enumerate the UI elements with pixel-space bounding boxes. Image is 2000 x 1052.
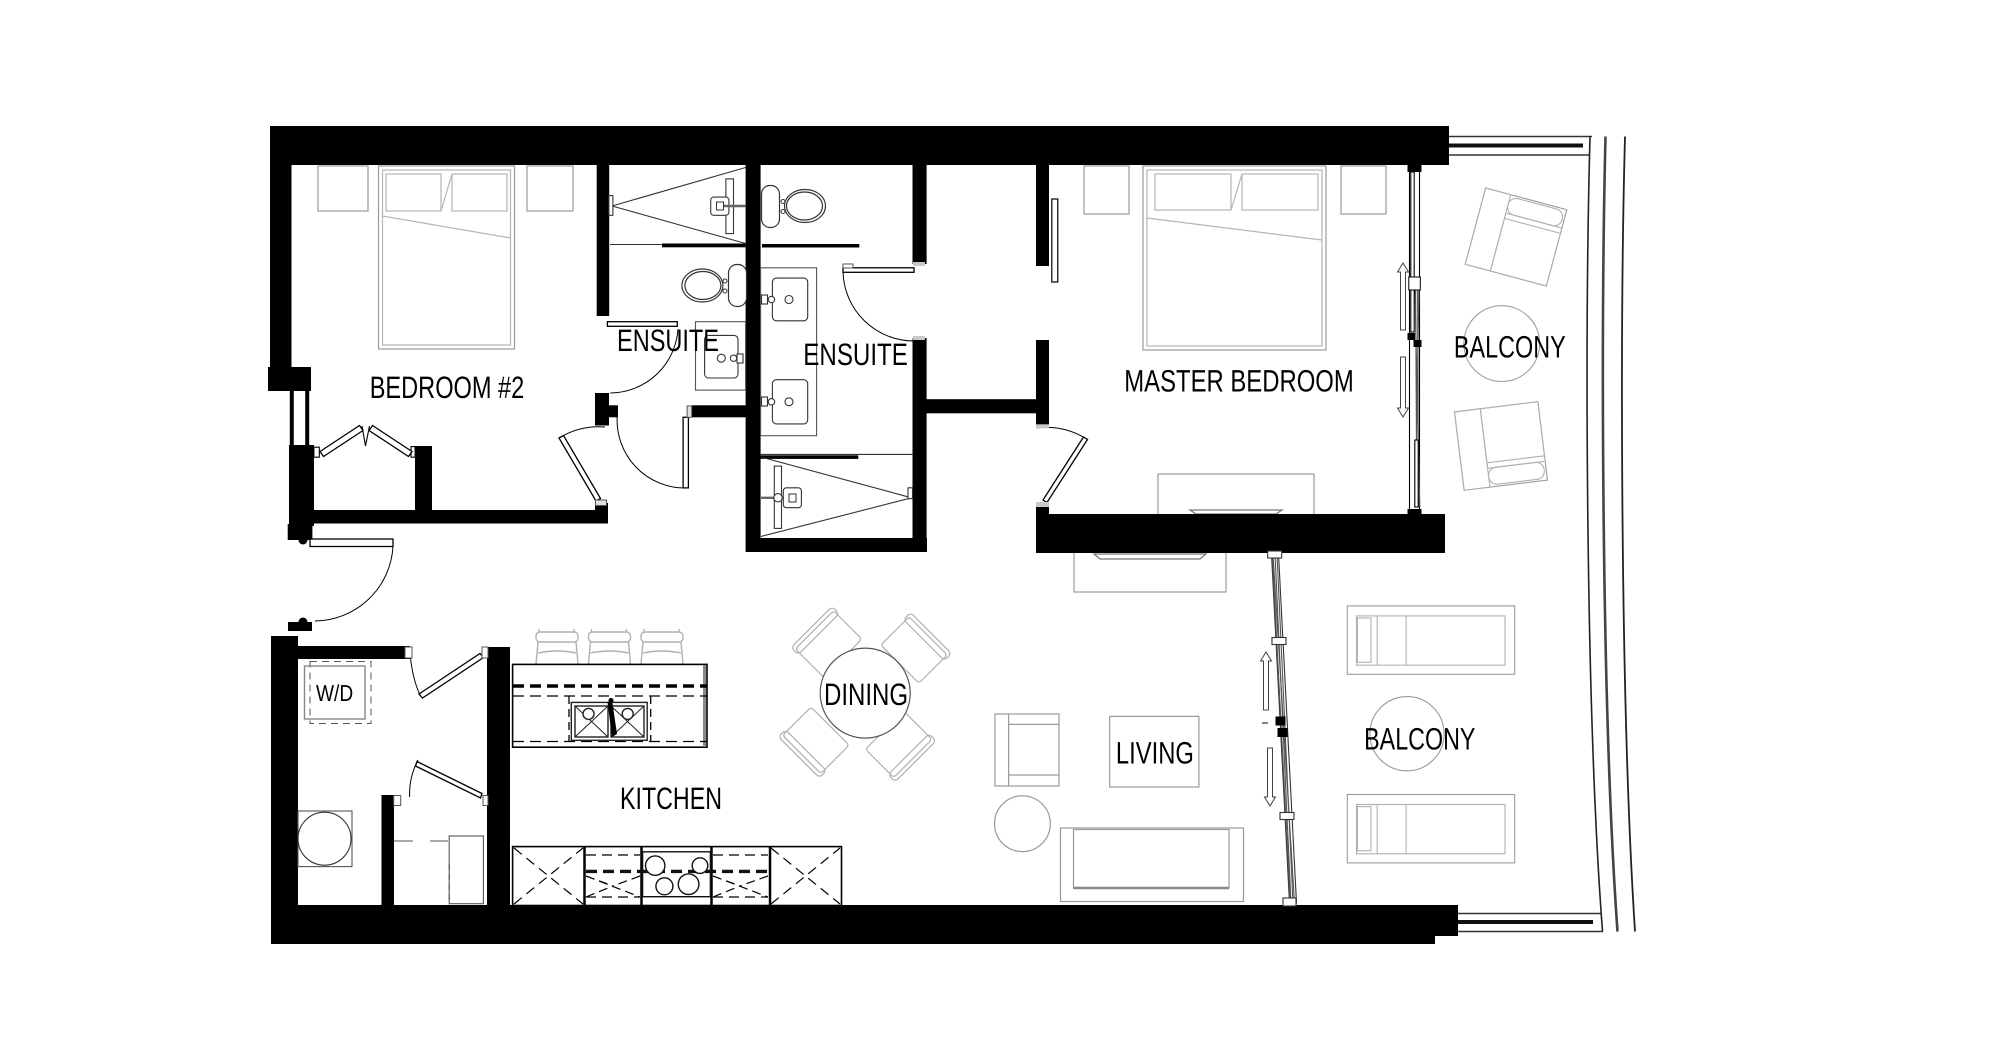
- svg-text:ENSUITE: ENSUITE: [617, 323, 719, 358]
- svg-text:ENSUITE: ENSUITE: [803, 337, 908, 372]
- svg-text:MASTER BEDROOM: MASTER BEDROOM: [1124, 363, 1354, 398]
- svg-text:W/D: W/D: [316, 680, 353, 706]
- svg-text:LIVING: LIVING: [1116, 736, 1194, 771]
- svg-text:BALCONY: BALCONY: [1364, 722, 1475, 757]
- svg-text:BEDROOM #2: BEDROOM #2: [370, 370, 525, 405]
- svg-text:KITCHEN: KITCHEN: [620, 781, 722, 816]
- svg-text:DINING: DINING: [824, 677, 908, 712]
- svg-text:BALCONY: BALCONY: [1454, 330, 1566, 365]
